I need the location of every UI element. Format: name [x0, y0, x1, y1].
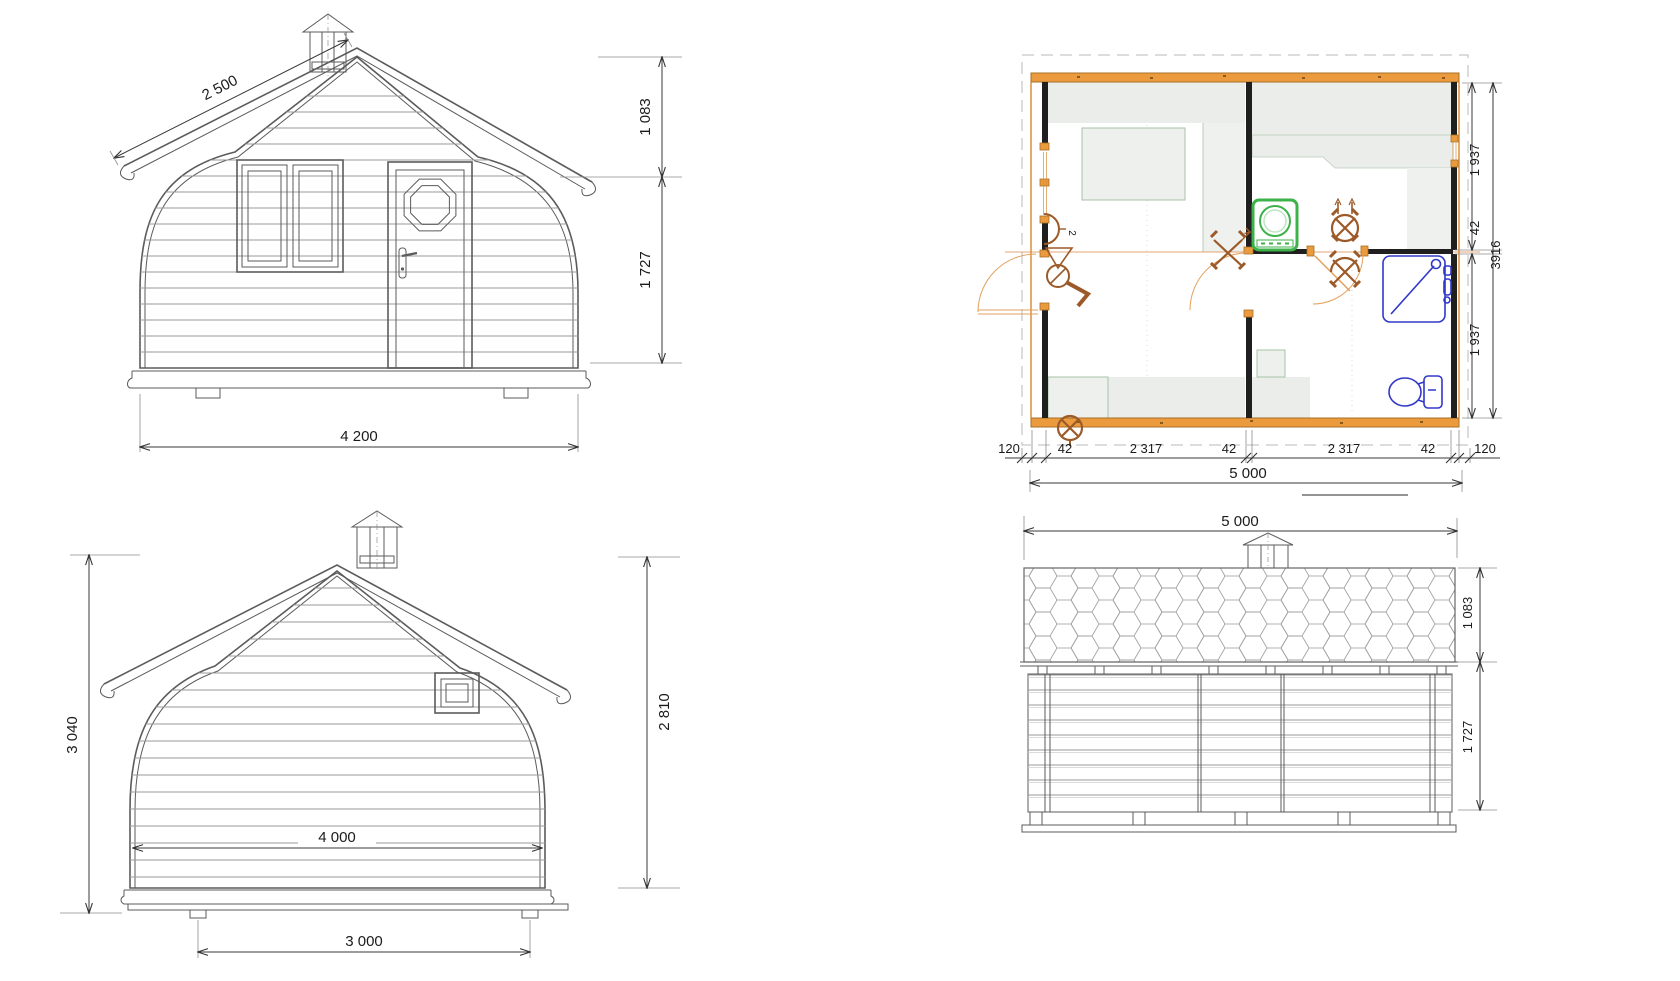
dim-plan-b1: 42 [1058, 441, 1072, 456]
dim-plan-total-length: 5 000 [1030, 465, 1462, 495]
front-siding [135, 96, 583, 352]
dim-plan-b6: 120 [1474, 441, 1496, 456]
dim-side-roof-height-label: 1 083 [1460, 597, 1475, 630]
dim-rear-ridge-height-label: 2 810 [656, 693, 673, 731]
plan-partition-wall [1246, 82, 1252, 253]
plan-bed [1082, 128, 1185, 200]
dim-rear-total-height: 3 040 [60, 555, 140, 913]
front-roof [120, 48, 595, 196]
drawing-canvas: 2 500 1 083 1 727 4 200 [0, 0, 1680, 981]
dim-plan-b4: 2 317 [1328, 441, 1361, 456]
side-elevation-view: 5 000 [1020, 513, 1497, 832]
dim-plan-total-length-label: 5 000 [1229, 465, 1267, 482]
dim-plan-total-depth-label: 3916 [1488, 241, 1503, 270]
dim-rear-ridge-height: 2 810 [618, 557, 680, 888]
front-door [388, 162, 472, 368]
plan-sanitary [1383, 256, 1451, 408]
rear-chimney [352, 511, 402, 570]
cabin-body-outline [140, 57, 578, 368]
dim-plan-b5: 42 [1421, 441, 1435, 456]
bathroom-lamp-icon [1330, 251, 1360, 287]
dim-plan-r1: 42 [1467, 221, 1482, 235]
switch-panel-icon [1044, 214, 1088, 306]
side-base [1022, 812, 1456, 832]
dim-side-length-label: 5 000 [1221, 513, 1259, 530]
rear-roof [100, 565, 570, 704]
dim-front-roof-height-label: 1 083 [637, 98, 654, 136]
cabin-body-inner-line [145, 62, 573, 368]
dim-front-wall-height-label: 1 727 [637, 251, 654, 289]
drawing-sheet: 2 500 1 083 1 727 4 200 [0, 0, 1680, 981]
vent-lamp-icon [1332, 199, 1358, 241]
switch-gang-label: 2 [1066, 230, 1077, 236]
rear-base [121, 890, 568, 918]
front-chimney [303, 14, 353, 76]
dim-rear-inner-width-label: 4 000 [318, 829, 356, 846]
side-eave [1020, 662, 1458, 674]
dim-plan-b2: 2 317 [1130, 441, 1163, 456]
side-wall [1028, 674, 1452, 812]
dim-plan-r2: 1 937 [1467, 324, 1482, 357]
dim-plan-r0: 1 937 [1467, 144, 1482, 177]
door-octagon-window [404, 179, 456, 231]
entry-door-swing [978, 254, 1036, 312]
washing-machine-icon [1253, 200, 1297, 250]
front-window [237, 160, 343, 272]
dim-rear-base-width: 3 000 [198, 920, 530, 958]
dim-plan-right-chain: 1 937 42 1 937 3916 [1455, 83, 1503, 418]
side-chimney [1243, 533, 1293, 568]
door-handle-icon [399, 248, 417, 278]
dim-front-roof-slope: 2 500 [110, 33, 352, 165]
dim-rear-total-height-label: 3 040 [64, 716, 81, 754]
plan-door-swings [978, 253, 1363, 314]
shower-tray-icon [1383, 256, 1451, 322]
floor-plan-view: 2 120 42 2 317 42 2 317 42 120 5 000 1 9… [978, 55, 1503, 495]
dim-front-roof-slope-label: 2 500 [199, 72, 240, 104]
dim-plan-bottom-chain: 120 42 2 317 42 2 317 42 120 [998, 430, 1500, 463]
plan-bench [1048, 377, 1108, 418]
dim-plan-b3: 42 [1222, 441, 1236, 456]
rear-window [435, 673, 479, 713]
dim-rear-inner-width: 4 000 [133, 829, 542, 848]
front-elevation-view: 2 500 1 083 1 727 4 200 [110, 14, 682, 452]
plan-shelf [1257, 350, 1285, 377]
dim-side-heights: 1 083 1 727 [1458, 568, 1497, 810]
dim-front-width-label: 4 200 [340, 428, 378, 445]
front-base [128, 371, 591, 398]
rear-elevation-view: 3 040 2 810 4 000 3 000 [60, 511, 680, 958]
toilet-icon [1389, 376, 1442, 408]
dim-rear-base-width-label: 3 000 [345, 933, 383, 950]
dim-plan-b0: 120 [998, 441, 1020, 456]
dim-side-wall-height-label: 1 727 [1460, 721, 1475, 754]
dim-front-width: 4 200 [140, 394, 578, 452]
dim-side-length: 5 000 [1024, 513, 1457, 560]
side-roof-shingles [1024, 568, 1455, 662]
